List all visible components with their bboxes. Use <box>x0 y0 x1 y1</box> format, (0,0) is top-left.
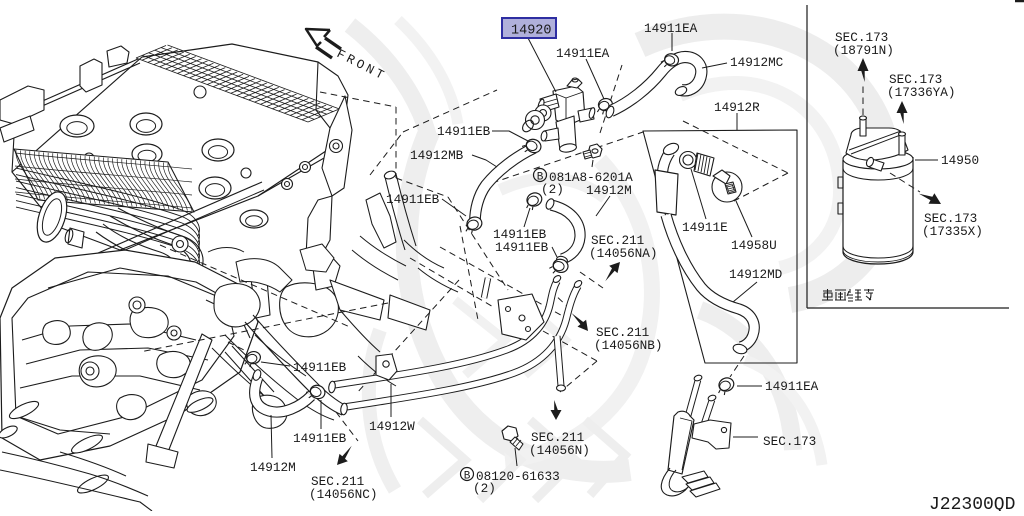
svg-text:14950: 14950 <box>941 153 979 168</box>
svg-text:(14056N): (14056N) <box>529 443 590 458</box>
svg-text:14911EA: 14911EA <box>556 46 610 61</box>
svg-text:(14056NA): (14056NA) <box>589 246 658 261</box>
svg-text:(2): (2) <box>541 182 564 197</box>
svg-text:(17336YA): (17336YA) <box>887 85 956 100</box>
svg-text:(14056NB): (14056NB) <box>594 338 663 353</box>
svg-text:14912M: 14912M <box>250 460 296 475</box>
svg-text:14912W: 14912W <box>369 419 415 434</box>
svg-text:(18791N): (18791N) <box>833 43 894 58</box>
svg-text:(17335X): (17335X) <box>922 224 983 239</box>
svg-text:14911EB: 14911EB <box>293 360 347 375</box>
svg-text:J22300QD: J22300QD <box>929 495 1015 511</box>
svg-text:(2): (2) <box>473 481 496 496</box>
svg-text:14912R: 14912R <box>714 100 760 115</box>
svg-text:14911EA: 14911EA <box>765 379 819 394</box>
svg-text:B: B <box>464 471 471 483</box>
svg-text:14912MB: 14912MB <box>410 148 464 163</box>
svg-text:14911EB: 14911EB <box>386 192 440 207</box>
svg-text:14920: 14920 <box>511 24 552 39</box>
svg-text:14958U: 14958U <box>731 238 777 253</box>
svg-text:14912MC: 14912MC <box>730 55 784 70</box>
svg-text:14911EA: 14911EA <box>644 21 698 36</box>
svg-text:(14056NC): (14056NC) <box>309 487 378 502</box>
svg-text:14911EB: 14911EB <box>293 431 347 446</box>
svg-text:14912MD: 14912MD <box>729 267 782 282</box>
svg-text:14911E: 14911E <box>682 220 728 235</box>
svg-text:14911EB: 14911EB <box>495 240 549 255</box>
svg-text:14911EB: 14911EB <box>437 124 491 139</box>
svg-text:SEC.173: SEC.173 <box>763 434 816 449</box>
svg-text:14912M: 14912M <box>586 183 632 198</box>
